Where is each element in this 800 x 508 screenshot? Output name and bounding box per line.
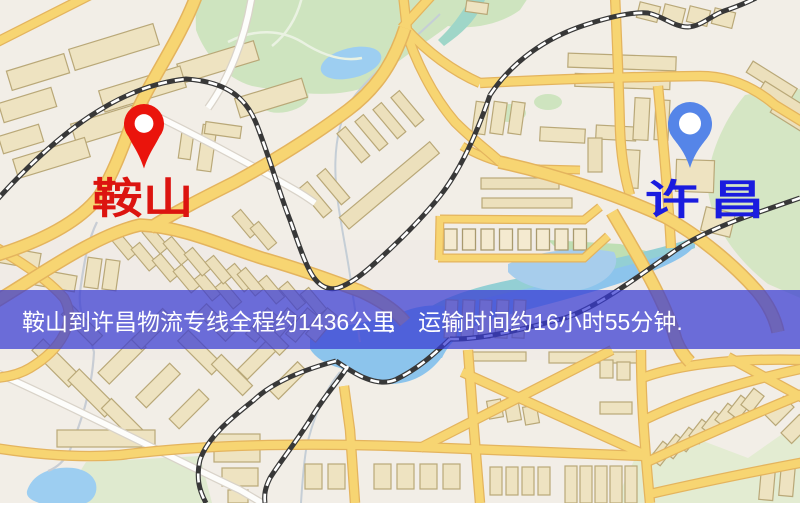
svg-text:鞍山: 鞍山 — [92, 175, 194, 222]
svg-text:许昌: 许昌 — [645, 178, 775, 224]
svg-text:鞍山到许昌物流专线全程约1436公里，运输时间约16小时55: 鞍山到许昌物流专线全程约1436公里，运输时间约16小时55分钟. — [22, 309, 683, 335]
